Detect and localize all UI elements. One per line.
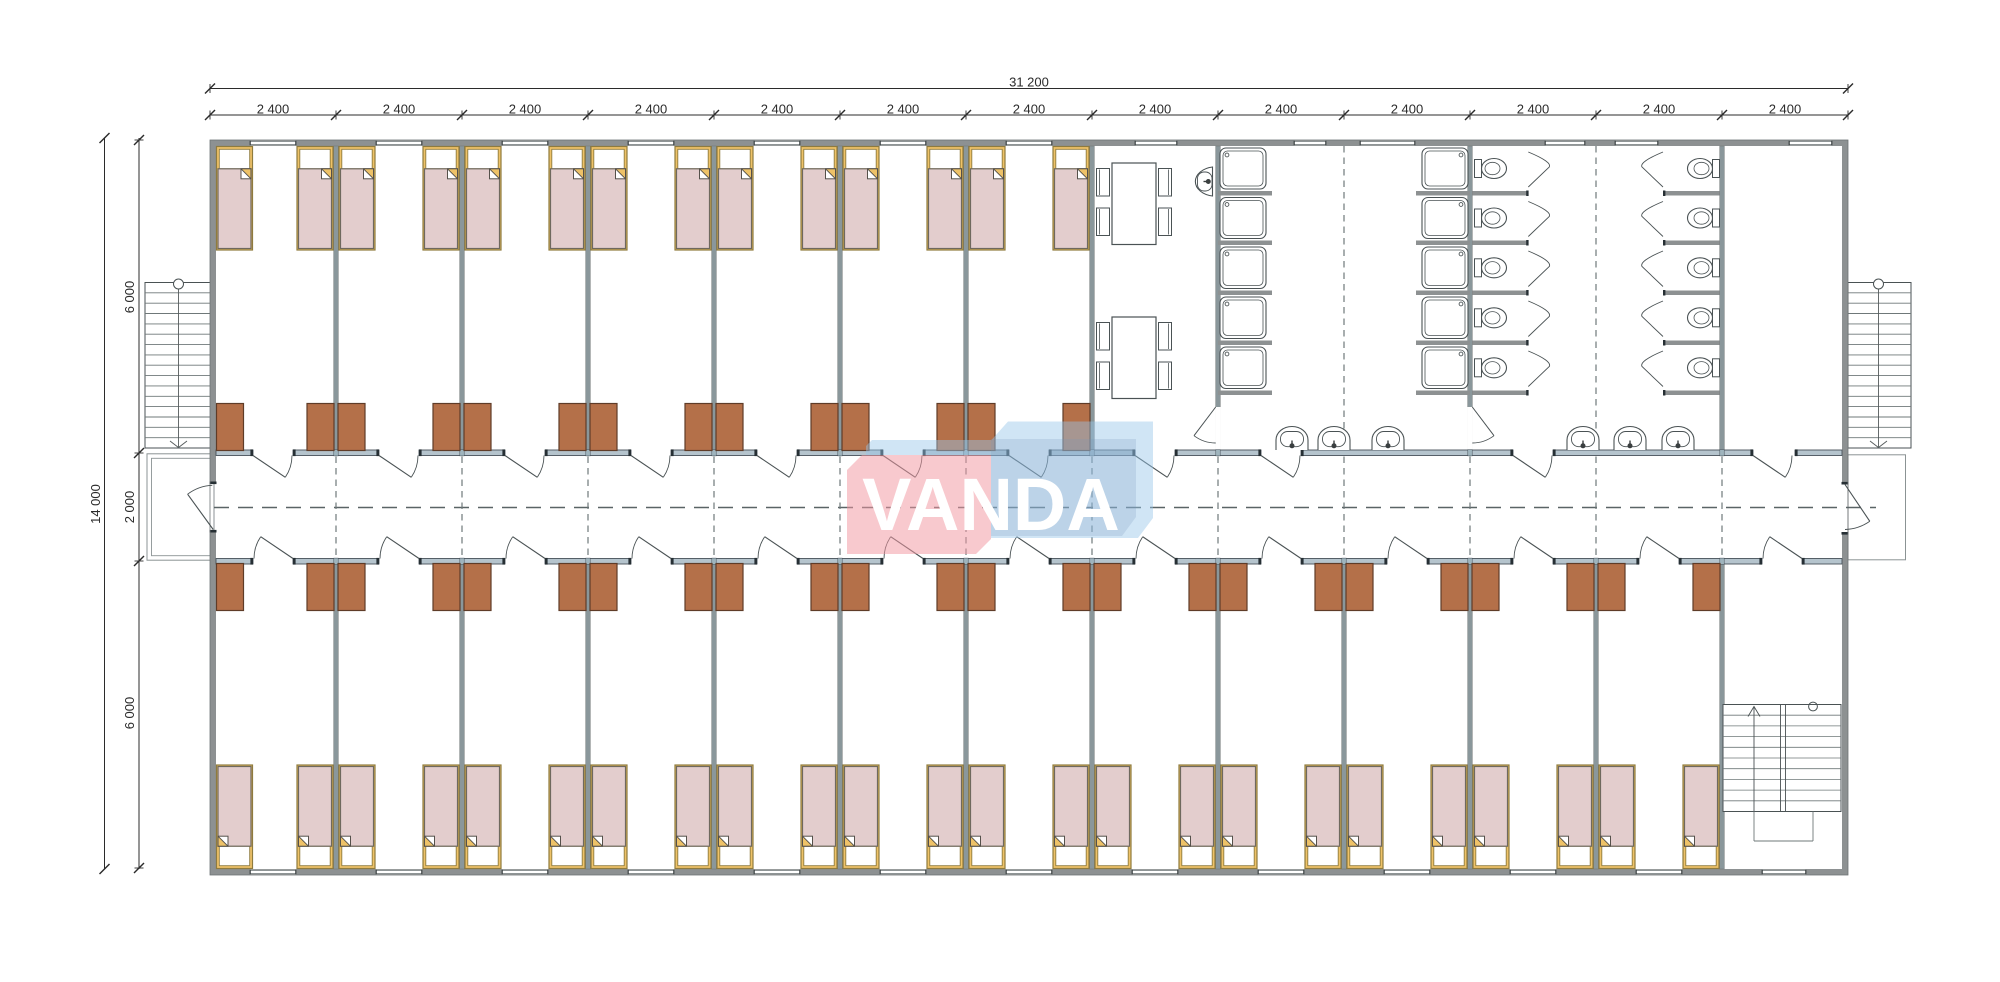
svg-text:2 400: 2 400	[1643, 102, 1676, 117]
svg-text:6 000: 6 000	[122, 697, 137, 730]
svg-text:2 400: 2 400	[509, 102, 542, 117]
svg-text:2 400: 2 400	[1013, 102, 1046, 117]
svg-text:2 400: 2 400	[1391, 102, 1424, 117]
svg-text:2 400: 2 400	[1517, 102, 1550, 117]
svg-text:2 400: 2 400	[257, 102, 290, 117]
svg-text:2 400: 2 400	[887, 102, 920, 117]
svg-text:14 000: 14 000	[88, 484, 103, 524]
svg-text:31 200: 31 200	[1009, 74, 1049, 89]
svg-text:2 400: 2 400	[635, 102, 668, 117]
svg-text:6 000: 6 000	[122, 281, 137, 314]
svg-text:2 400: 2 400	[1265, 102, 1298, 117]
svg-text:2 000: 2 000	[122, 491, 137, 524]
svg-text:2 400: 2 400	[1769, 102, 1802, 117]
svg-text:VANDA: VANDA	[862, 463, 1120, 546]
svg-text:2 400: 2 400	[1139, 102, 1172, 117]
svg-text:2 400: 2 400	[761, 102, 794, 117]
svg-text:2 400: 2 400	[383, 102, 416, 117]
